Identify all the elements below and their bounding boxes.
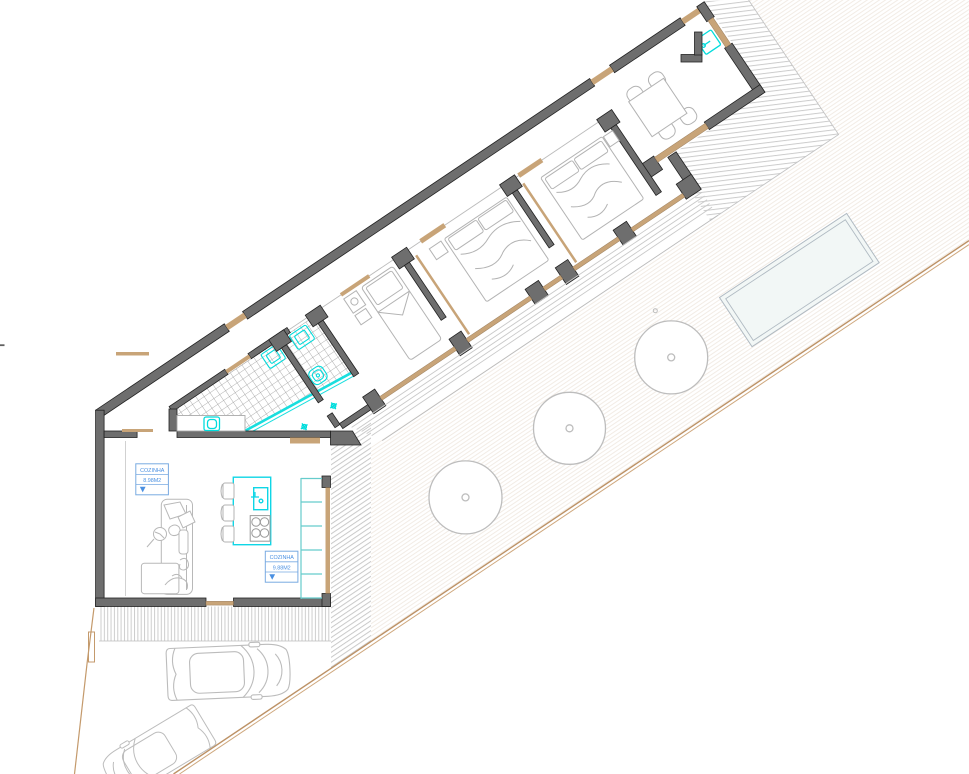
svg-text:COZINHA: COZINHA: [270, 555, 295, 561]
svg-text:8.98M2: 8.98M2: [143, 478, 161, 484]
svg-text:COZINHA: COZINHA: [140, 468, 165, 474]
svg-text:9.88M2: 9.88M2: [273, 565, 291, 571]
